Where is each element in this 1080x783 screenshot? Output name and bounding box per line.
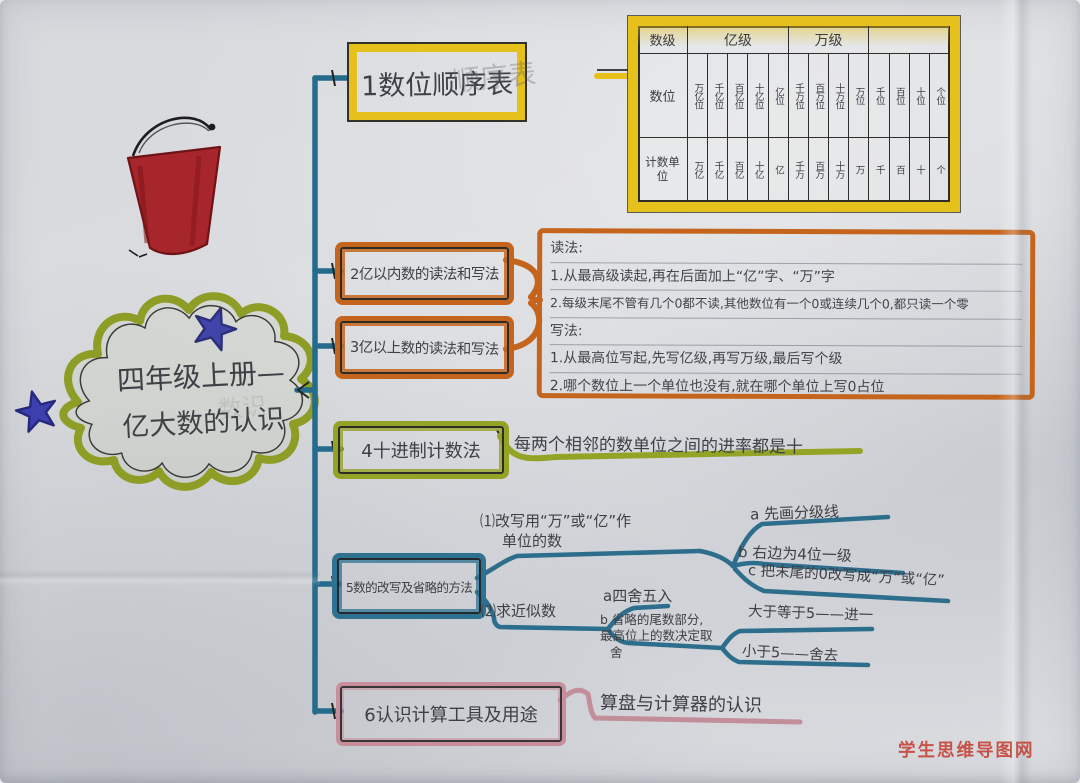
rewrite-line2: 单位的数 bbox=[480, 531, 631, 551]
table-unit-cell: 千 bbox=[869, 138, 889, 202]
table-digit-cell: 十亿位 bbox=[748, 54, 768, 138]
branch5-label: 5数的改写及省略的方法 bbox=[346, 577, 472, 596]
branch5-box: 5数的改写及省略的方法 bbox=[337, 558, 481, 614]
round-up-rule: 大于等于5——进一 bbox=[748, 600, 874, 625]
branch4-note: 每两个相邻的数单位之间的进率都是十 bbox=[514, 429, 803, 457]
rule-line: 2.哪个数位上一个单位也没有,就在哪个单位上写0占位 bbox=[550, 373, 1022, 401]
table-digit-cell: 千位 bbox=[869, 54, 889, 138]
table-wan-level: 万级 bbox=[789, 26, 870, 54]
table-digit-cell: 个位 bbox=[930, 54, 950, 138]
rule-line: 写法: bbox=[550, 318, 1022, 347]
branch2-box: 2亿以内数的读法和写法 bbox=[340, 247, 509, 300]
table-units-label: 计数单位 bbox=[638, 138, 688, 202]
approx-step-b-line3: 舍 bbox=[600, 645, 713, 661]
table-unit-cell: 百 bbox=[890, 138, 910, 202]
table-level-label: 数级 bbox=[638, 26, 688, 54]
table-unit-cell: 万亿 bbox=[688, 138, 708, 202]
table-digit-cell: 万亿位 bbox=[688, 54, 708, 138]
orange-brace bbox=[506, 260, 540, 349]
branch6-label: 6认识计算工具及用途 bbox=[364, 701, 537, 727]
table-digits-label: 数位 bbox=[638, 54, 688, 138]
approx-step-b-line1: b 省略的尾数部分, bbox=[600, 612, 713, 628]
star-icon-left bbox=[13, 387, 61, 434]
table-unit-cell: 千亿 bbox=[708, 138, 728, 202]
table-unit-cell: 十亿 bbox=[748, 138, 768, 202]
table-digit-cell: 百万位 bbox=[809, 54, 829, 138]
junction-ticks bbox=[298, 70, 509, 719]
table-digit-cell: 千万位 bbox=[789, 54, 809, 138]
rewrite-step-a: a 先画分级线 bbox=[750, 500, 840, 524]
central-topic: 四年级上册— 亿大数的认识 bbox=[90, 349, 314, 445]
branch3-label: 3亿以上数的读法和写法 bbox=[350, 336, 499, 360]
reading-writing-rules-box: 读法: 1.从最高级读起,再在后面加上“亿”字、“万”字 2.每级末尾不管有几个… bbox=[537, 228, 1036, 400]
table-unit-cell: 百亿 bbox=[728, 138, 748, 202]
table-digit-cell: 万位 bbox=[849, 54, 869, 138]
branch6-box: 6认识计算工具及用途 bbox=[340, 686, 562, 742]
branch3-box: 3亿以上数的读法和写法 bbox=[340, 321, 509, 374]
table-yi-level: 亿级 bbox=[688, 26, 789, 54]
rule-line: 读法: bbox=[550, 235, 1022, 264]
branch6-note: 算盘与计算器的认识 bbox=[600, 689, 762, 718]
table-digit-cell: 百位 bbox=[890, 54, 910, 138]
branch4-box: 4十进制计数法 bbox=[338, 426, 504, 474]
table-digit-cell: 百亿位 bbox=[728, 54, 748, 138]
branch2-label: 2亿以内数的读法和写法 bbox=[350, 263, 499, 284]
table-digit-cell: 千亿位 bbox=[708, 54, 728, 138]
rule-line: 1.从最高级读起,再在后面加上“亿”字、“万”字 bbox=[550, 263, 1022, 292]
rule-line: 2.每级末尾不管有几个0都不读,其他数位有一个0或连续几个0,都只读一个零 bbox=[550, 290, 1022, 319]
table-digit-cell: 十万位 bbox=[829, 54, 849, 138]
table-unit-cell: 十 bbox=[910, 138, 930, 202]
table-unit-cell: 十万 bbox=[829, 138, 849, 202]
approx-step-b: b 省略的尾数部分, 最高位上的数决定取 舍 bbox=[600, 612, 713, 661]
rewrite-subtopic: ⑴改写用“万”或“亿”作 单位的数 bbox=[480, 511, 631, 552]
central-topic-ghost: 数识 bbox=[216, 386, 267, 426]
paper: 四年级上册— 亿大数的认识 数识 1数位顺序表 顺序表 数级 亿级 万级 数位 … bbox=[0, 0, 1080, 783]
table-ge-level bbox=[869, 26, 950, 54]
table-unit-cell: 万 bbox=[849, 138, 869, 202]
place-value-table: 数级 亿级 万级 数位 万亿位 千亿位 百亿位 十亿位 亿位 千万位 百万位 十… bbox=[628, 16, 960, 212]
table-unit-cell: 个 bbox=[930, 138, 950, 202]
table-unit-cell: 亿 bbox=[769, 138, 789, 202]
branch4-label: 4十进制计数法 bbox=[361, 437, 480, 463]
table-digit-cell: 亿位 bbox=[769, 54, 789, 138]
table-digit-cell: 十位 bbox=[910, 54, 930, 138]
approx-step-b-line2: 最高位上的数决定取 bbox=[600, 628, 713, 644]
rule-line: 1.从最高位写起,先写亿级,再写万级,最后写个级 bbox=[550, 345, 1022, 374]
table-unit-cell: 千万 bbox=[789, 138, 809, 202]
site-watermark: 学生思维导图网 bbox=[898, 737, 1035, 762]
table-unit-cell: 百万 bbox=[809, 138, 829, 202]
approx-subtopic: ⑵求近似数 bbox=[481, 600, 556, 621]
bucket-drawing bbox=[128, 118, 220, 257]
approx-step-a: a四舍五入 bbox=[603, 585, 672, 606]
rewrite-line1: ⑴改写用“万”或“亿”作 bbox=[480, 511, 631, 531]
